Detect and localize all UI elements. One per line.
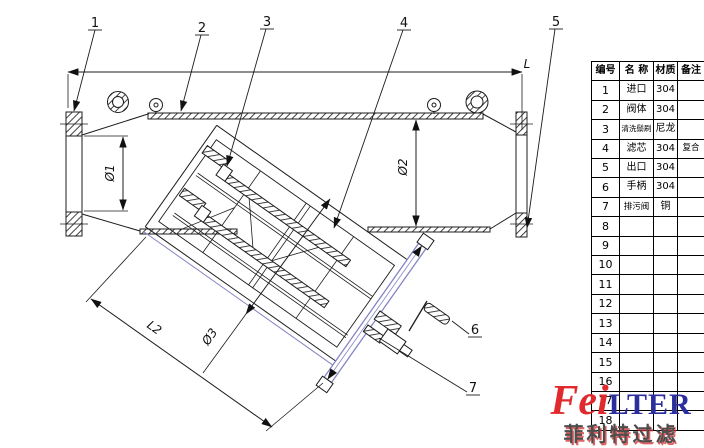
balloon-4: 4 [400, 16, 408, 31]
table-row: 16 [592, 372, 704, 391]
col-header-name: 名 称 [620, 62, 654, 81]
table-row: 18 [592, 411, 704, 431]
table-row: 14 [592, 333, 704, 352]
table-row: 10 [592, 256, 704, 275]
balloon-5: 5 [552, 15, 560, 30]
balloon-6: 6 [471, 323, 479, 338]
balloon-3: 3 [263, 15, 271, 30]
table-row: 11 [592, 275, 704, 294]
table-row: 3清洗鬃刷尼龙 [592, 120, 704, 139]
strainer-housing [127, 100, 434, 393]
col-header-note: 备注 [678, 62, 704, 81]
cleaning-brush-strips [170, 146, 362, 308]
table-row: 4滤芯304复合 [592, 139, 704, 158]
table-row: 5出口304 [592, 159, 704, 178]
table-row: 8 [592, 217, 704, 236]
balloon-7: 7 [469, 381, 477, 396]
dim-label-D1: Ø1 [103, 164, 117, 182]
table-row: 17 [592, 391, 704, 410]
lifting-ring-right [466, 91, 488, 113]
vent-valve-right [428, 99, 441, 115]
dim-label-L: L [524, 57, 531, 71]
parts-table: 编号 名 称 材质 备注 1进口304 2阀体304 3清洗鬃刷尼龙 4滤芯30… [591, 61, 704, 431]
parts-table-header: 编号 名 称 材质 备注 [592, 62, 704, 81]
dim-L [68, 72, 522, 130]
balloon-1: 1 [91, 16, 99, 31]
col-header-material: 材质 [654, 62, 678, 81]
dim-label-D3: Ø3 [199, 326, 221, 349]
table-row: 6手柄304 [592, 178, 704, 197]
table-row: 12 [592, 294, 704, 313]
dim-label-L2: L2 [144, 318, 164, 338]
table-row: 9 [592, 236, 704, 255]
table-row: 13 [592, 314, 704, 333]
table-row: 7排污阀铜 [592, 197, 704, 216]
dim-label-D2: Ø2 [396, 158, 410, 176]
handle [409, 301, 451, 331]
table-row: 2阀体304 [592, 100, 704, 119]
vent-valve-left [150, 99, 163, 115]
table-row: 15 [592, 353, 704, 372]
inlet-flange [60, 112, 88, 236]
balloon-2: 2 [198, 21, 206, 36]
lifting-ring-left [108, 92, 129, 113]
table-row: 1进口304 [592, 81, 704, 100]
col-header-no: 编号 [592, 62, 620, 81]
pipe-body [82, 113, 516, 234]
drawing-sheet: L Ø1 Ø2 L2 Ø3 1 2 3 4 5 6 7 编号 名 称 材质 备注… [0, 0, 704, 448]
